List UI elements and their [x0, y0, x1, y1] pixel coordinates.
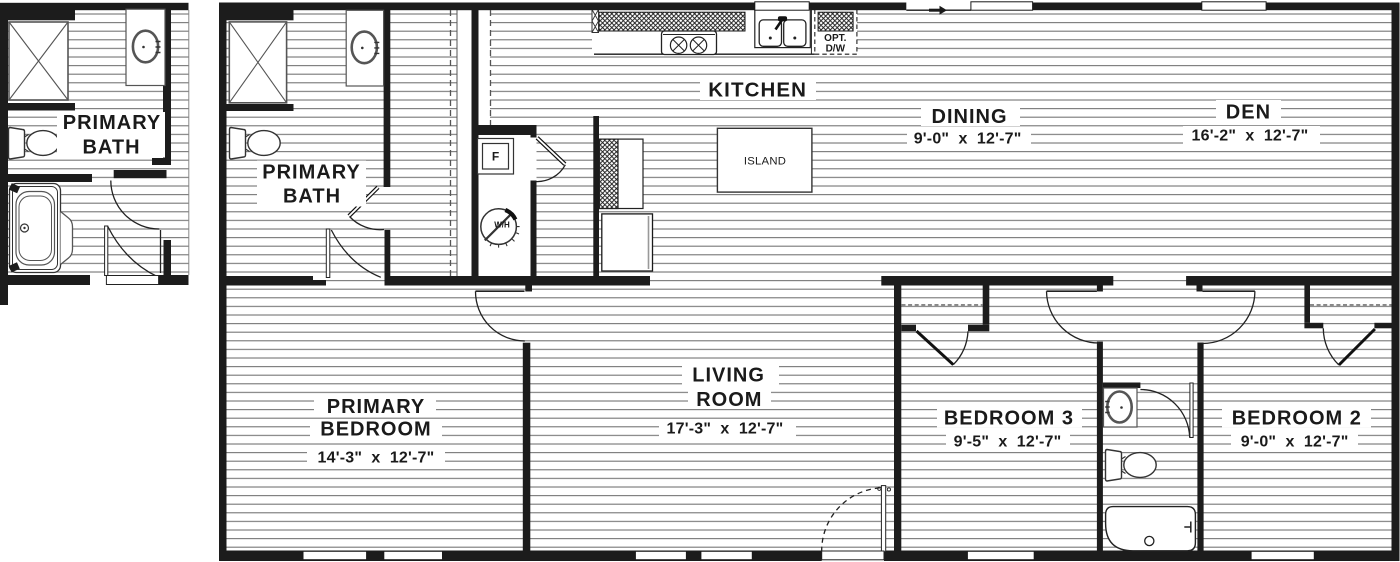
svg-text:BEDROOM: BEDROOM [320, 418, 431, 440]
svg-text:D/W: D/W [826, 43, 846, 54]
svg-text:KITCHEN: KITCHEN [708, 78, 807, 101]
svg-text:F: F [492, 150, 499, 164]
svg-text:BEDROOM 2: BEDROOM 2 [1232, 407, 1362, 429]
svg-text:16'-2" x 12'-7": 16'-2" x 12'-7" [1192, 128, 1309, 145]
svg-text:BATH: BATH [82, 137, 140, 159]
svg-text:W/H: W/H [494, 221, 510, 230]
svg-text:LIVING: LIVING [692, 365, 765, 387]
svg-text:PRIMARY: PRIMARY [327, 396, 425, 418]
svg-text:BATH: BATH [283, 186, 341, 208]
svg-text:BEDROOM 3: BEDROOM 3 [944, 407, 1074, 429]
svg-text:17'-3" x 12'-7": 17'-3" x 12'-7" [667, 421, 784, 438]
svg-text:9'-5" x 12'-7": 9'-5" x 12'-7" [954, 434, 1062, 451]
svg-text:DINING: DINING [932, 106, 1008, 128]
svg-text:14'-3" x 12'-7": 14'-3" x 12'-7" [318, 450, 435, 467]
svg-text:ROOM: ROOM [696, 389, 762, 411]
svg-text:9'-0" x 12'-7": 9'-0" x 12'-7" [914, 130, 1022, 147]
svg-text:ISLAND: ISLAND [744, 155, 786, 167]
svg-text:PRIMARY: PRIMARY [63, 112, 161, 134]
svg-text:PRIMARY: PRIMARY [262, 162, 360, 184]
svg-text:9'-0" x 12'-7": 9'-0" x 12'-7" [1241, 434, 1349, 451]
svg-text:DEN: DEN [1226, 102, 1271, 124]
